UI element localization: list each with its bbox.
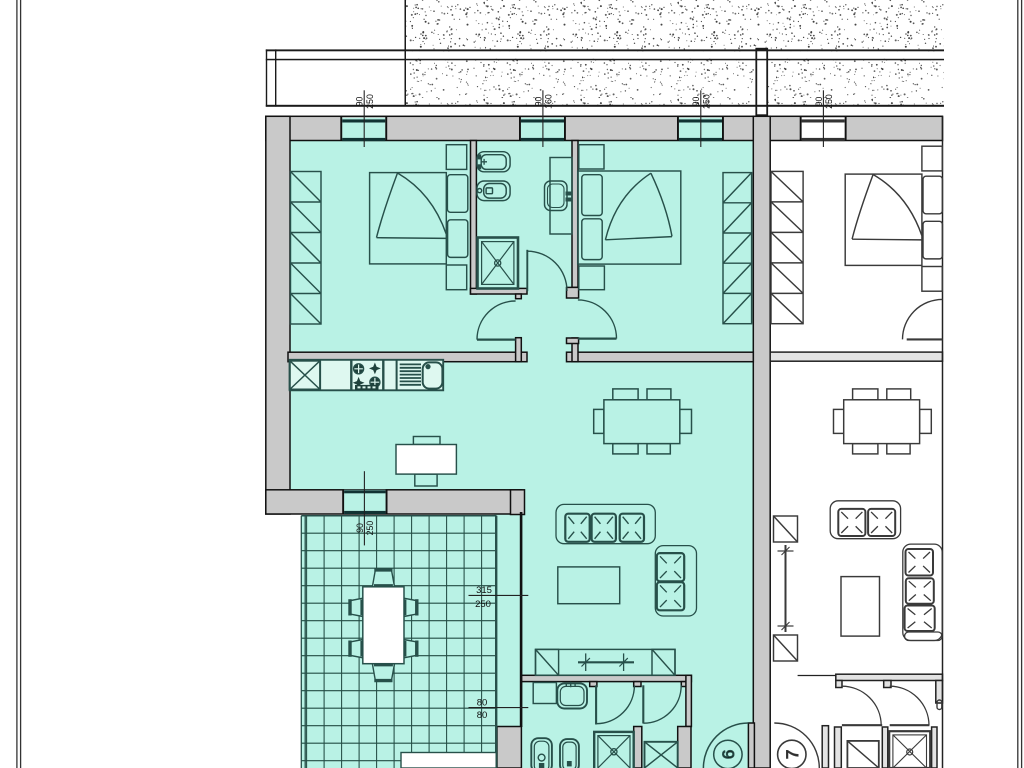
svg-text:250: 250 (702, 94, 712, 109)
svg-text:6: 6 (719, 750, 738, 759)
svg-text:7: 7 (783, 750, 802, 759)
svg-text:250: 250 (365, 94, 375, 109)
svg-text:250: 250 (365, 521, 375, 536)
svg-text:315: 315 (476, 585, 492, 596)
svg-text:90: 90 (355, 97, 365, 107)
svg-text:160: 160 (544, 94, 554, 109)
svg-text:80: 80 (477, 710, 488, 721)
svg-text:90: 90 (814, 97, 824, 107)
svg-text:80: 80 (477, 697, 488, 708)
svg-text:250: 250 (475, 599, 491, 610)
svg-text:90: 90 (355, 523, 365, 533)
svg-text:250: 250 (824, 94, 834, 109)
svg-text:90: 90 (533, 97, 543, 107)
svg-text:90: 90 (691, 97, 701, 107)
